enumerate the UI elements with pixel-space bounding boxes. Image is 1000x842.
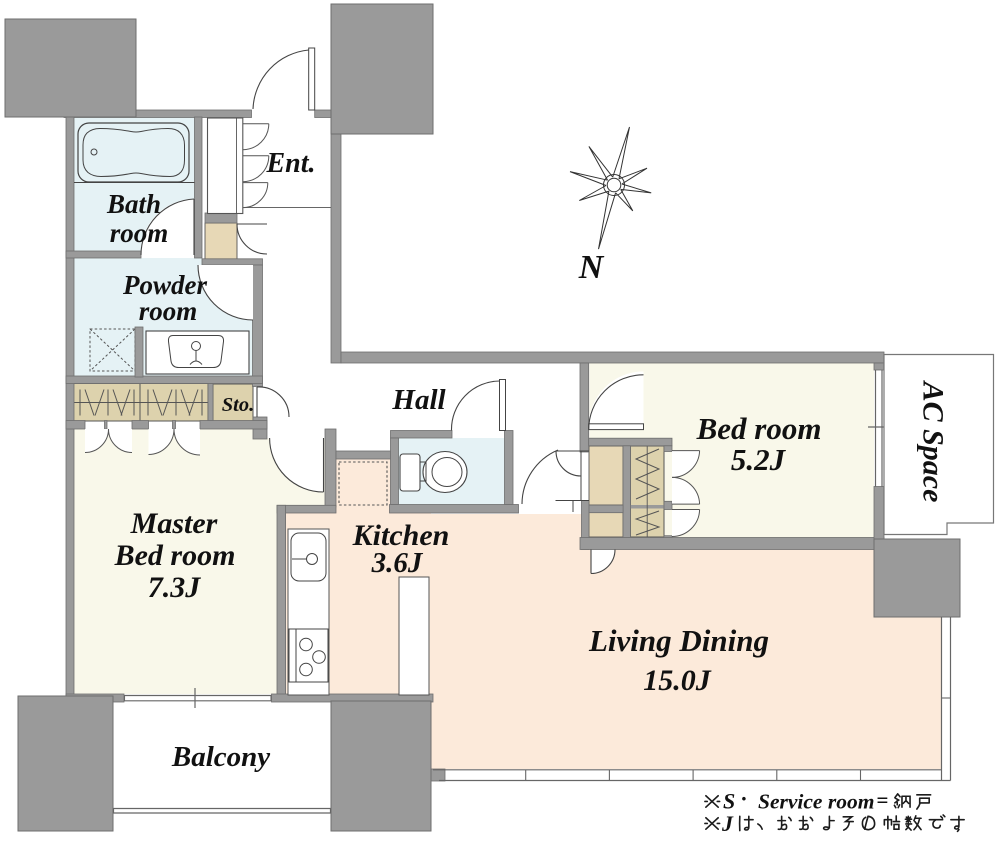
svg-text:Hall: Hall [391,384,446,416]
svg-text:=: = [877,788,889,812]
svg-text:Master: Master [130,507,218,540]
svg-text:·: · [741,786,747,811]
svg-text:Service room: Service room [758,790,874,814]
svg-text:Living Dining: Living Dining [588,623,769,658]
svg-text:5.2J: 5.2J [731,442,787,477]
svg-text:15.0J: 15.0J [643,664,712,697]
svg-text:J: J [721,811,734,836]
svg-text:room: room [110,218,169,248]
svg-text:Bed room: Bed room [114,539,236,572]
svg-text:Balcony: Balcony [171,741,270,773]
svg-text:Ent.: Ent. [265,148,315,179]
svg-text:Bath: Bath [106,189,161,219]
svg-text:Sto.: Sto. [222,394,254,416]
svg-text:S: S [723,789,735,814]
svg-text:Bed room: Bed room [696,411,822,446]
svg-text:N: N [578,249,605,286]
svg-text:AC Space: AC Space [917,380,950,503]
svg-text:3.6J: 3.6J [371,547,424,579]
svg-text:room: room [139,296,198,326]
svg-text:7.3J: 7.3J [148,571,202,604]
